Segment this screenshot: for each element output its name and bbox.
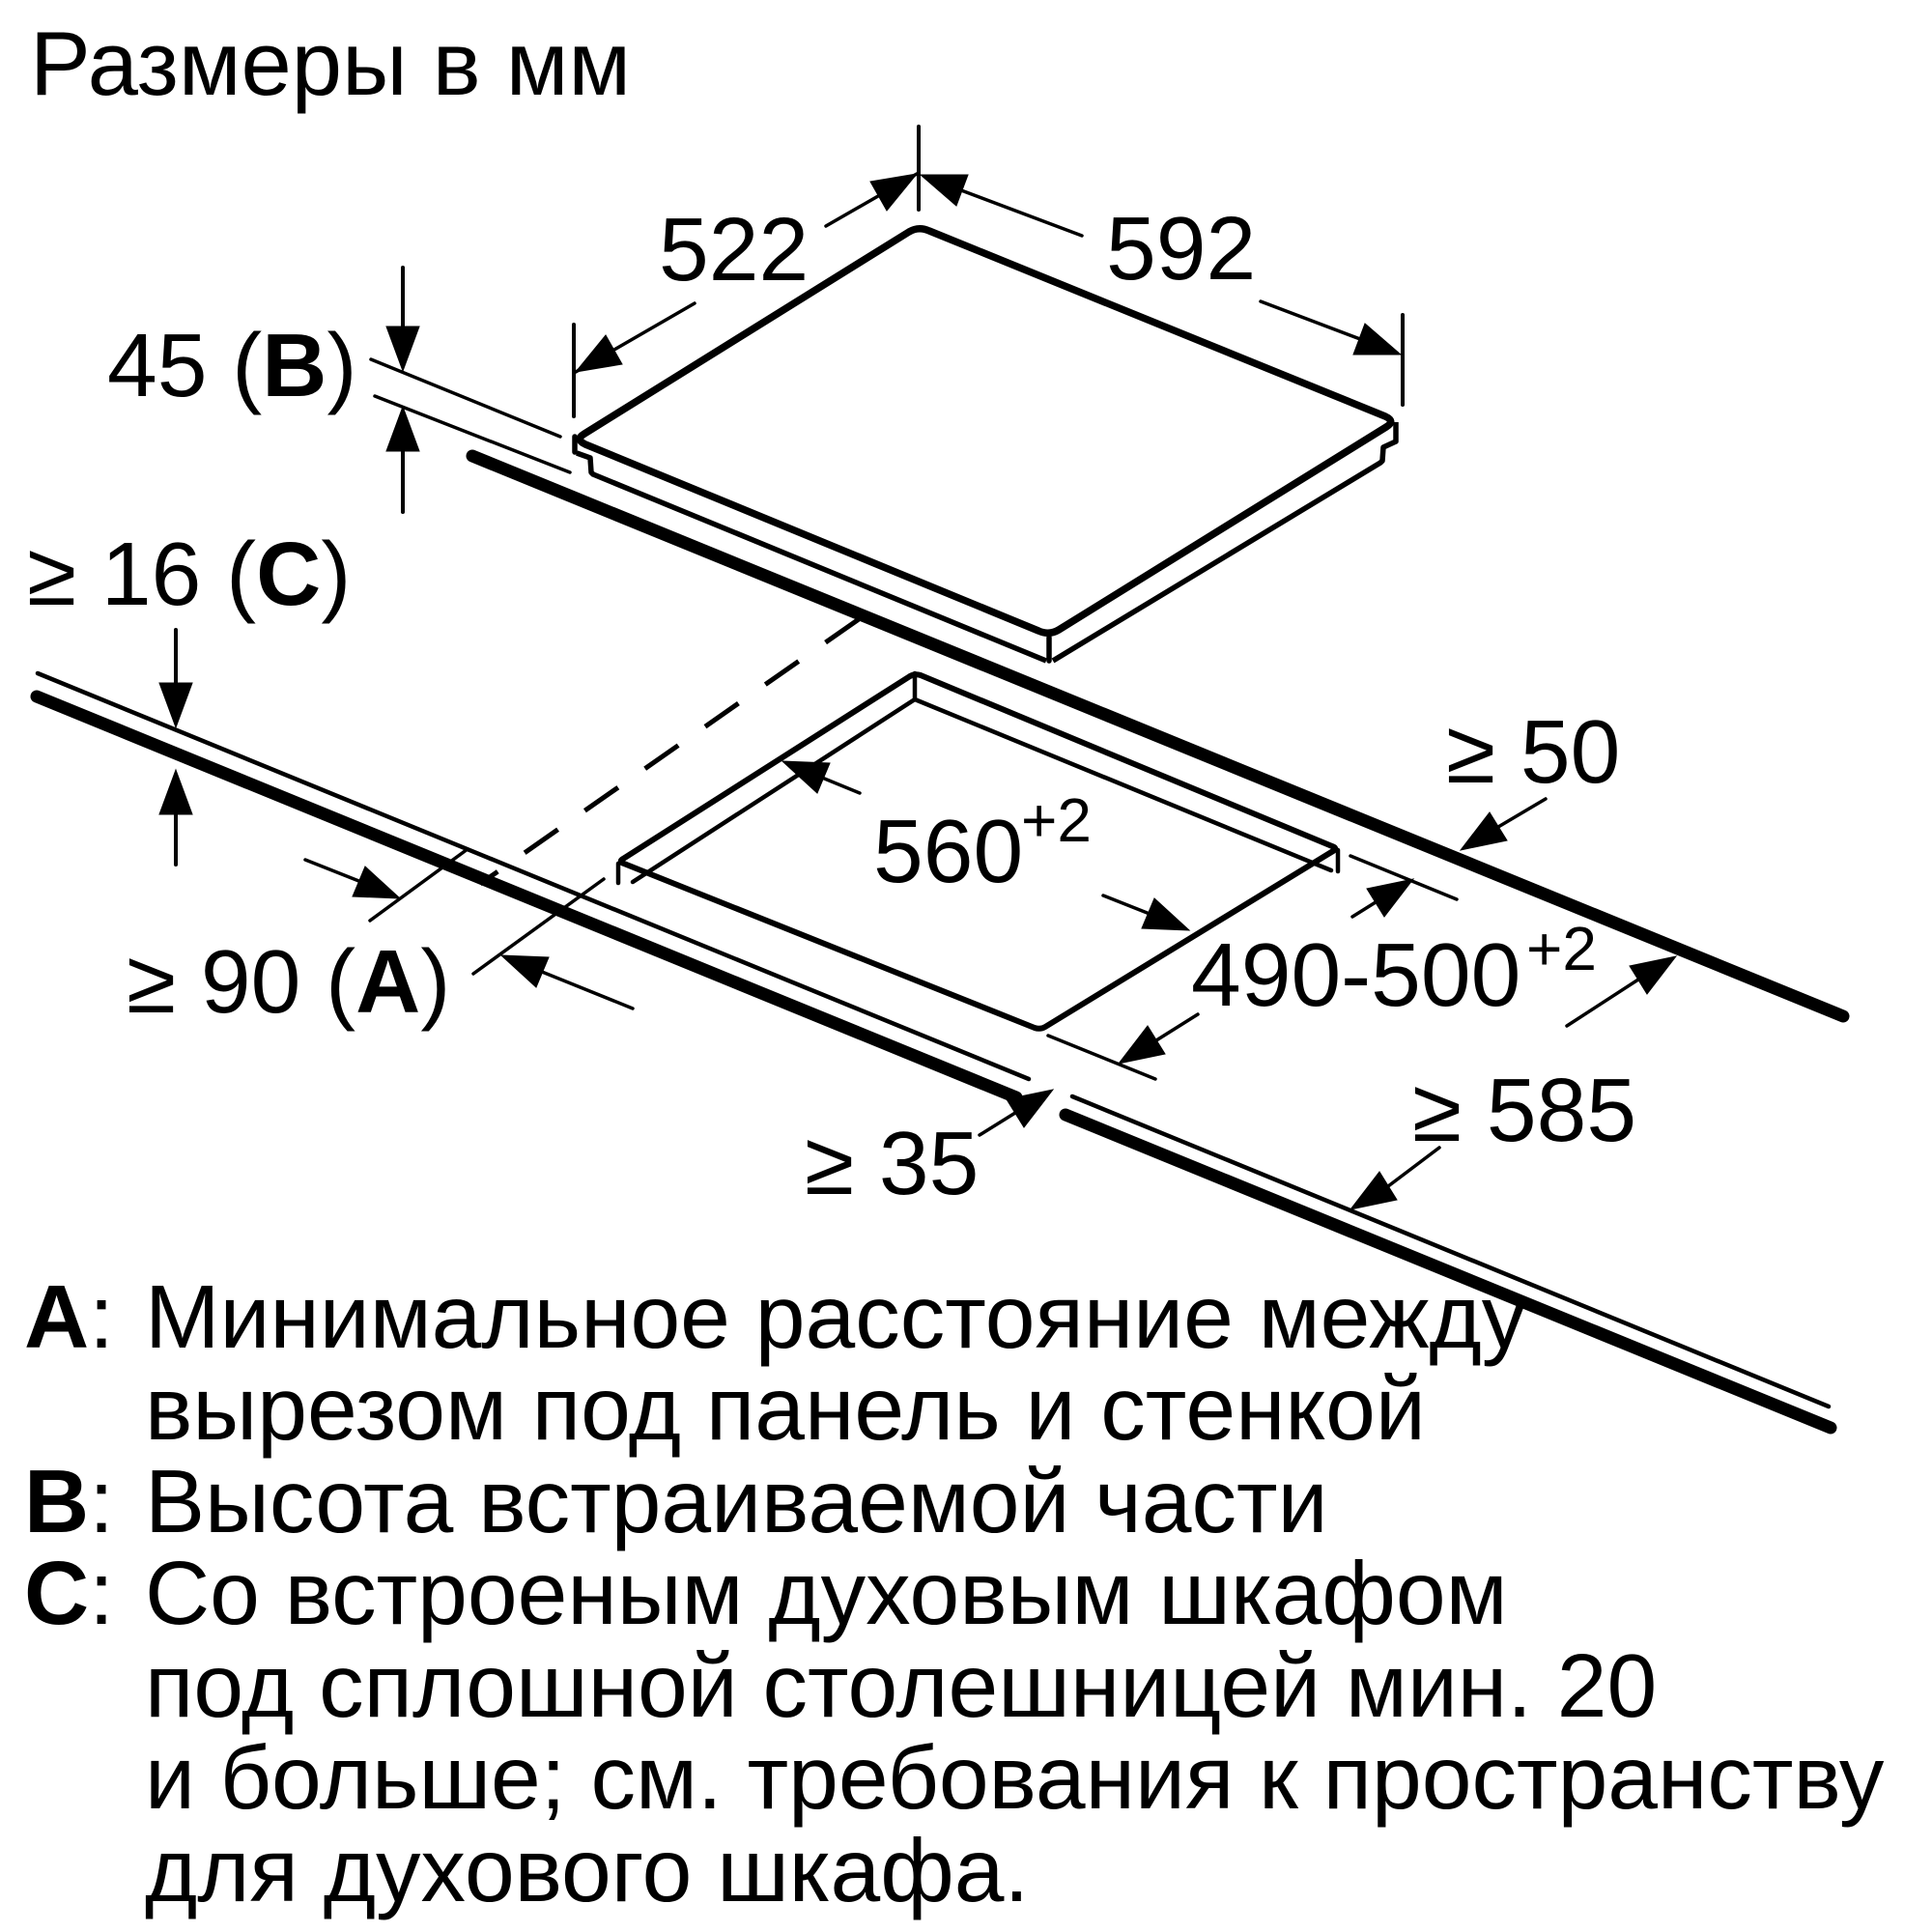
svg-text:45 (B): 45 (B) xyxy=(107,315,356,415)
svg-text:А:: А: xyxy=(24,1266,114,1367)
svg-text:560: 560 xyxy=(873,801,1023,901)
svg-text:522: 522 xyxy=(659,199,809,299)
svg-text:592: 592 xyxy=(1106,198,1256,298)
svg-text:Высота встраиваемой части: Высота встраиваемой части xyxy=(145,1451,1328,1551)
svg-text:≥ 16 (C): ≥ 16 (C) xyxy=(27,524,351,624)
svg-text:В:: В: xyxy=(24,1451,114,1551)
svg-text:С:: С: xyxy=(24,1543,114,1643)
svg-text:490-500: 490-500 xyxy=(1191,924,1520,1025)
svg-text:для духового шкафа.: для духового шкафа. xyxy=(145,1820,1029,1920)
svg-text:+2: +2 xyxy=(1526,914,1597,983)
svg-text:Размеры в мм: Размеры в мм xyxy=(30,13,631,114)
svg-text:Минимальное расстояние между: Минимальное расстояние между xyxy=(145,1266,1527,1367)
svg-text:≥ 50: ≥ 50 xyxy=(1446,701,1620,802)
svg-text:Со встроеным духовым шкафом: Со встроеным духовым шкафом xyxy=(145,1543,1508,1643)
svg-text:+2: +2 xyxy=(1021,785,1092,855)
svg-text:вырезом под панель и стенкой: вырезом под панель и стенкой xyxy=(145,1358,1426,1459)
svg-text:≥ 585: ≥ 585 xyxy=(1412,1060,1636,1160)
svg-text:≥ 35: ≥ 35 xyxy=(805,1113,979,1213)
svg-text:под сплошной столешницей мин.: под сплошной столешницей мин. 20 xyxy=(145,1635,1657,1736)
svg-text:≥ 90 (A): ≥ 90 (A) xyxy=(127,931,450,1032)
svg-text:и больше; см. требования к про: и больше; см. требования к пространству xyxy=(145,1727,1885,1828)
